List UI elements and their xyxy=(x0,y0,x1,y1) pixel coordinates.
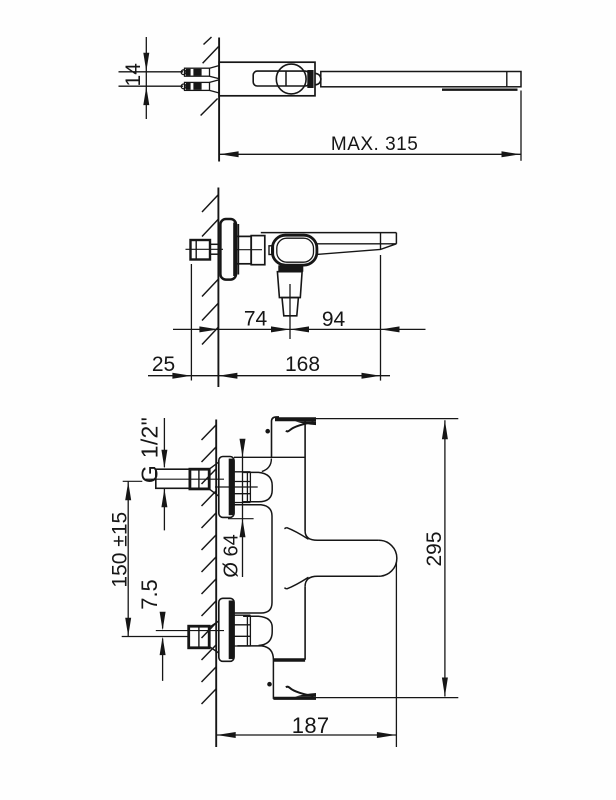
svg-text:G 1/2": G 1/2" xyxy=(136,417,162,483)
svg-text:14: 14 xyxy=(122,63,145,87)
svg-text:MAX. 315: MAX. 315 xyxy=(331,134,418,155)
svg-text:150 ±15: 150 ±15 xyxy=(109,512,132,588)
svg-text:187: 187 xyxy=(292,713,330,738)
svg-text:74: 74 xyxy=(244,308,268,331)
svg-text:94: 94 xyxy=(322,308,346,331)
svg-text:7.5: 7.5 xyxy=(137,579,162,610)
svg-text:295: 295 xyxy=(423,531,446,566)
svg-text:Ø 64: Ø 64 xyxy=(221,534,243,577)
svg-text:25: 25 xyxy=(152,353,175,376)
svg-text:168: 168 xyxy=(285,353,320,376)
